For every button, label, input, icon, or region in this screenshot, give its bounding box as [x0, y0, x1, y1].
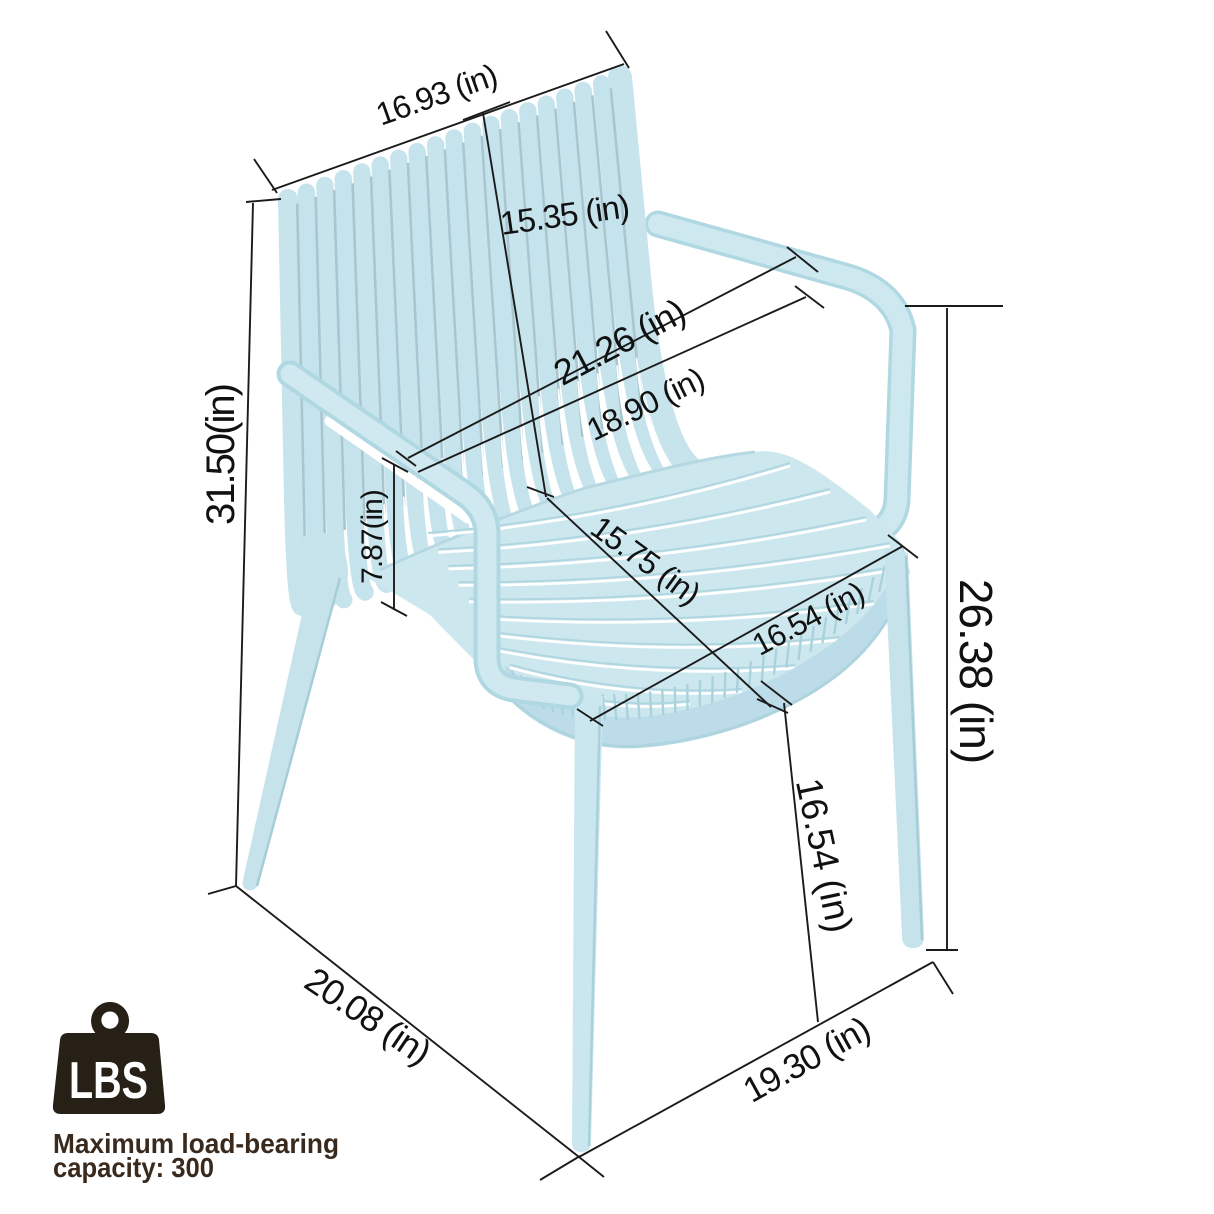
svg-text:31.50(in): 31.50(in) — [199, 385, 243, 525]
svg-text:26.38 (in): 26.38 (in) — [950, 579, 1002, 763]
svg-text:capacity: 300: capacity: 300 — [53, 1152, 214, 1183]
svg-text:7.87(in): 7.87(in) — [356, 490, 389, 584]
svg-text:LBS: LBS — [69, 1052, 148, 1110]
